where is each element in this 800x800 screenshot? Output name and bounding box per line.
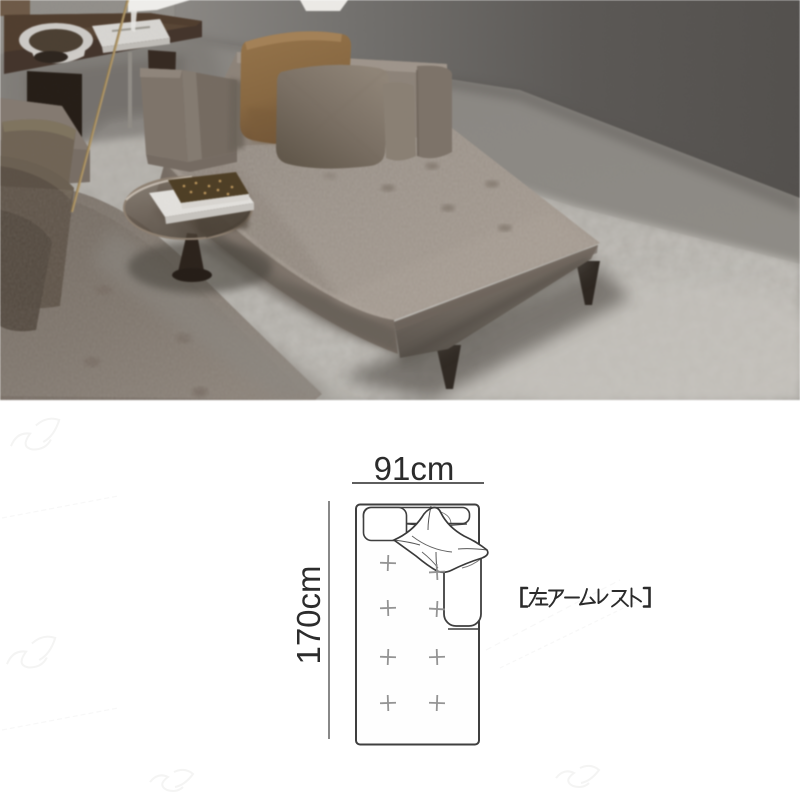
svg-text:170cm: 170cm — [290, 565, 327, 664]
svg-text:91cm: 91cm — [374, 450, 455, 487]
